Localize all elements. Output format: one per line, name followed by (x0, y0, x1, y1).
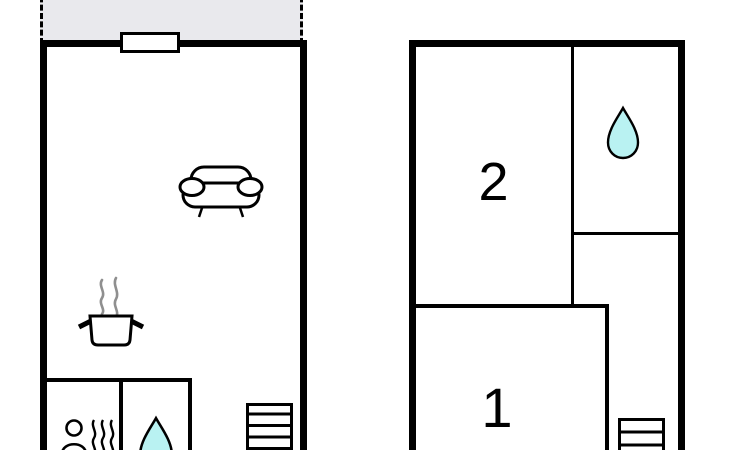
floor-plan-canvas: 2 1 (0, 0, 730, 450)
interior-wall (119, 378, 123, 450)
left-plan-outer-walls (40, 40, 307, 450)
window (120, 32, 180, 53)
interior-wall (574, 232, 678, 235)
person-with-steam-icon (55, 413, 117, 450)
room-1-label: 1 (416, 308, 578, 450)
water-drop-icon (137, 416, 175, 450)
sofa-icon (176, 163, 266, 218)
steam-line (115, 278, 117, 317)
stairs-icon (246, 403, 293, 450)
interior-wall (571, 47, 574, 307)
water-drop-icon (605, 106, 641, 160)
interior-wall (605, 304, 609, 450)
interior-wall (44, 378, 192, 382)
cooking-pot-icon (75, 277, 145, 349)
stairs-icon (618, 418, 665, 450)
room-2-label: 2 (416, 47, 571, 317)
interior-wall (188, 378, 192, 450)
steam-line (101, 280, 103, 314)
